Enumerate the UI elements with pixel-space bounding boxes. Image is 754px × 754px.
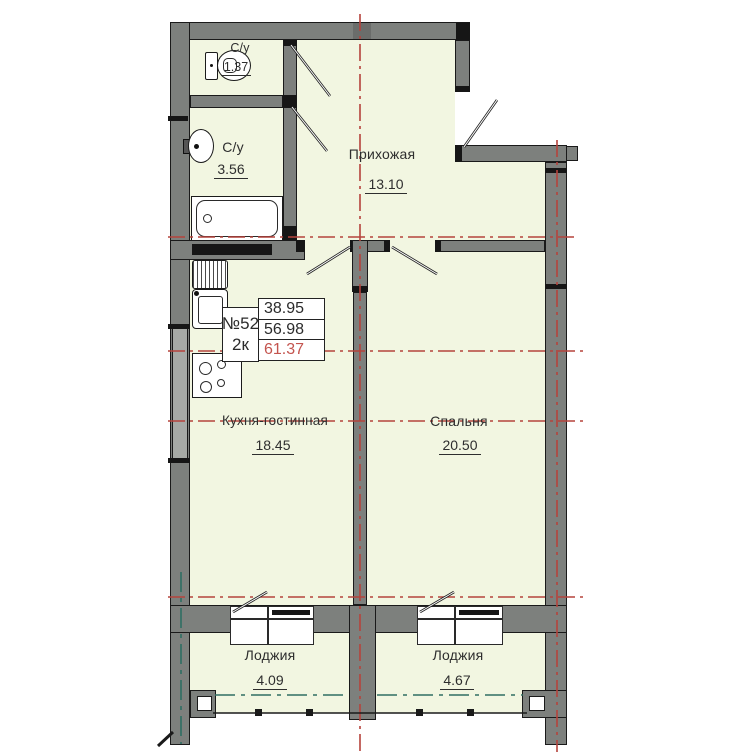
unit-areas: 38.95 56.98 61.37 [258, 298, 325, 361]
floor-plan: С/у 1.37 С/у 3.56 Прихожая 13.10 Кухня-г… [0, 0, 754, 754]
area-value: 4.67 [440, 672, 473, 690]
room-label-bathroom-small: С/у [220, 41, 260, 55]
loggia-glazing [158, 709, 527, 746]
unit-area: 56.98 [258, 319, 325, 341]
area-value: 3.56 [214, 161, 247, 179]
unit-total-area: 61.37 [258, 339, 325, 361]
room-area-loggia-left: 4.09 [247, 672, 293, 690]
area-value: 18.45 [252, 437, 293, 455]
area-value: 20.50 [439, 437, 480, 455]
unit-info-card: №52 2к 38.95 56.98 61.37 [222, 298, 326, 364]
room-label-kitchen-living: Кухня-гостинная [205, 413, 345, 428]
area-value: 13.10 [365, 176, 406, 194]
unit-type: 2к [232, 335, 249, 355]
unit-number: №52 [222, 314, 259, 334]
room-area-bedroom: 20.50 [430, 437, 490, 455]
room-area-bathroom-small: 1.37 [216, 60, 256, 76]
room-area-kitchen-living: 18.45 [243, 437, 303, 455]
area-value: 1.37 [221, 60, 251, 76]
room-label-bathroom: С/у [213, 139, 253, 155]
unit-number-cell: №52 2к [222, 307, 259, 362]
plan-overlay [0, 0, 754, 754]
room-label-loggia-right: Лоджия [427, 647, 489, 663]
unit-living-area: 38.95 [258, 298, 325, 320]
room-label-bedroom: Спальня [424, 413, 494, 429]
room-area-bathroom: 3.56 [209, 161, 253, 179]
room-area-hallway: 13.10 [354, 176, 418, 194]
room-label-hallway: Прихожая [330, 146, 434, 162]
room-label-loggia-left: Лоджия [239, 647, 301, 663]
area-value: 4.09 [253, 672, 286, 690]
room-area-loggia-right: 4.67 [434, 672, 480, 690]
axis-lines-red [168, 14, 588, 752]
